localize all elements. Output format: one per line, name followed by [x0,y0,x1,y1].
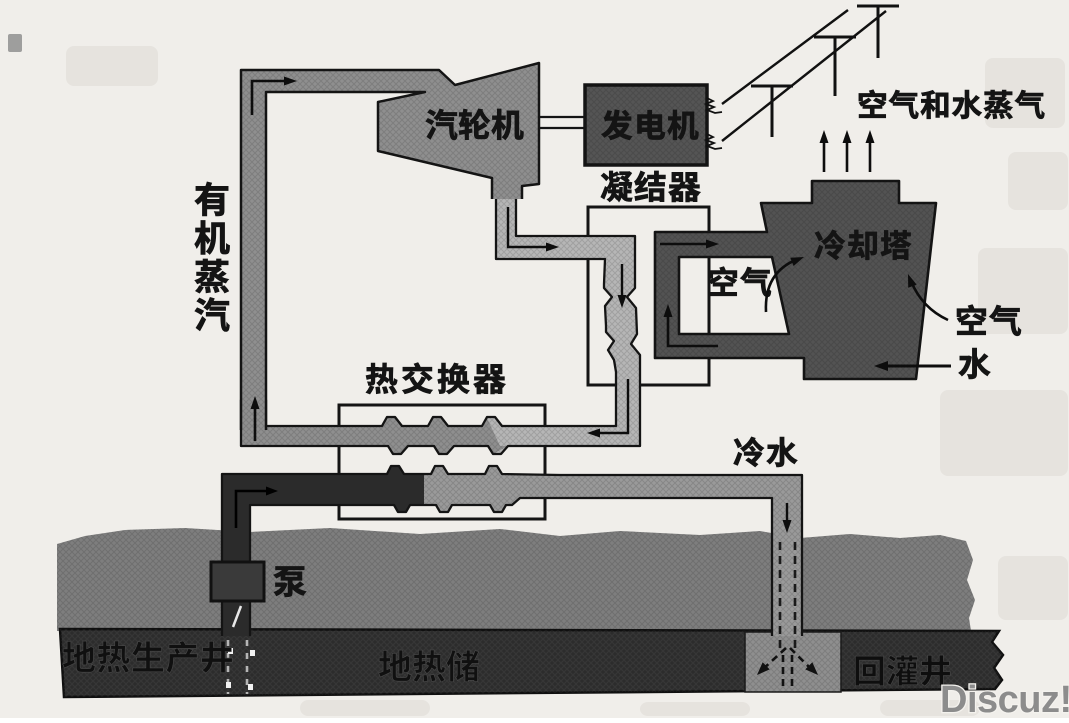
svg-text:Discuz!: Discuz! [940,679,1069,718]
